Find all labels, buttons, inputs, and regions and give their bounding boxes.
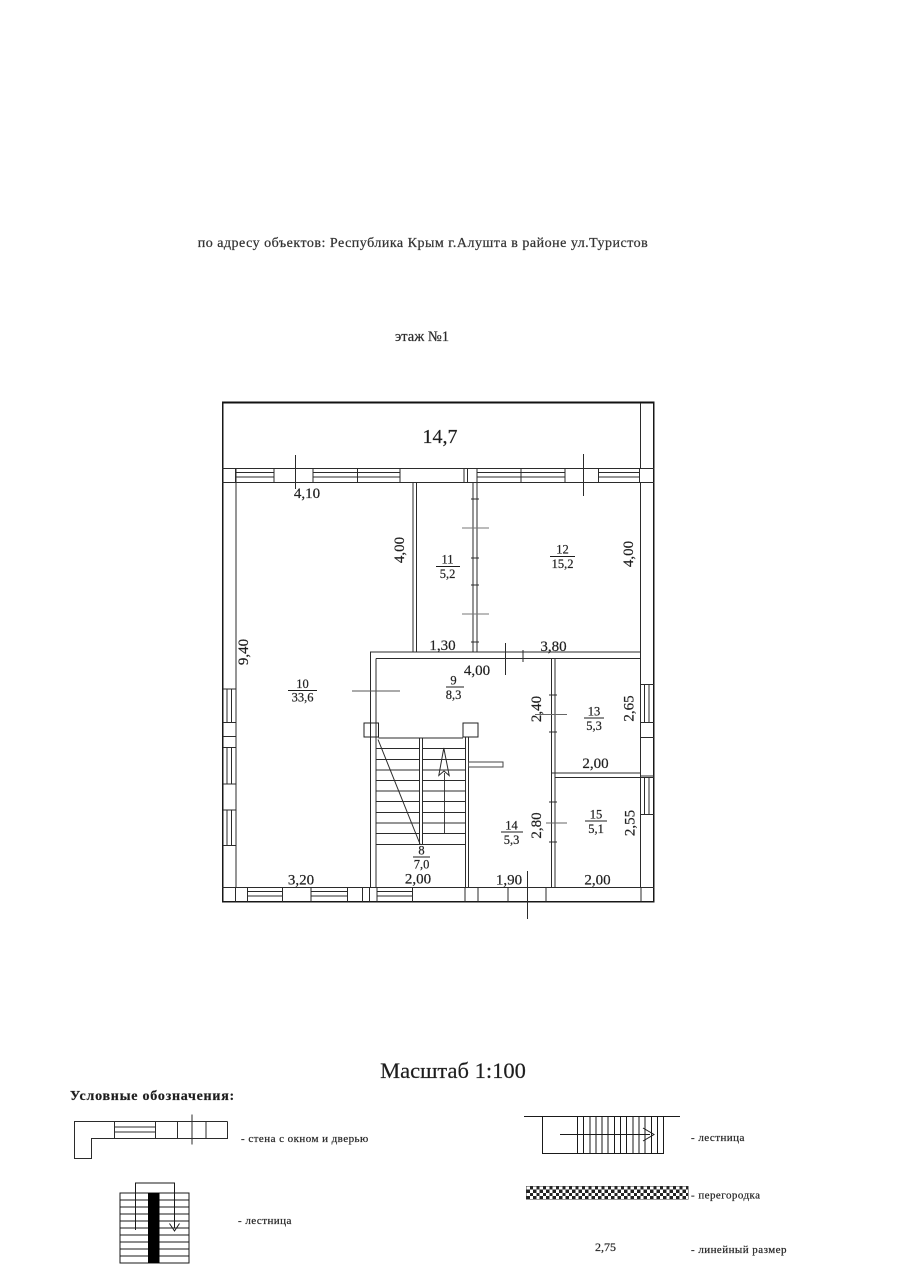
svg-text:2,00: 2,00 bbox=[405, 872, 431, 888]
svg-text:2,00: 2,00 bbox=[582, 756, 608, 772]
svg-text:11: 11 bbox=[441, 553, 453, 567]
svg-text:10: 10 bbox=[296, 677, 309, 691]
svg-text:2,55: 2,55 bbox=[623, 810, 639, 836]
svg-text:2,40: 2,40 bbox=[529, 696, 545, 722]
svg-text:33,6: 33,6 bbox=[292, 691, 314, 705]
svg-text:8,3: 8,3 bbox=[446, 688, 462, 702]
svg-text:4,00: 4,00 bbox=[621, 541, 637, 567]
svg-text:- линейный размер: - линейный размер bbox=[691, 1244, 787, 1256]
svg-text:5,1: 5,1 bbox=[588, 822, 604, 836]
svg-text:1,30: 1,30 bbox=[429, 638, 455, 654]
svg-text:9: 9 bbox=[450, 674, 456, 688]
svg-text:9,40: 9,40 bbox=[236, 639, 252, 665]
svg-text:- перегородка: - перегородка bbox=[691, 1190, 761, 1202]
svg-text:2,75: 2,75 bbox=[595, 1240, 616, 1254]
svg-text:5,3: 5,3 bbox=[586, 719, 602, 733]
svg-text:4,00: 4,00 bbox=[464, 663, 490, 679]
svg-text:Масштаб 1:100: Масштаб 1:100 bbox=[380, 1058, 526, 1083]
svg-text:- лестница: - лестница bbox=[691, 1132, 745, 1144]
svg-text:2,65: 2,65 bbox=[622, 695, 638, 721]
svg-text:8: 8 bbox=[418, 844, 424, 858]
svg-text:4,00: 4,00 bbox=[392, 537, 408, 563]
svg-text:5,2: 5,2 bbox=[440, 567, 456, 581]
svg-text:15: 15 bbox=[590, 808, 603, 822]
svg-text:5,3: 5,3 bbox=[504, 833, 520, 847]
svg-text:2,80: 2,80 bbox=[529, 812, 545, 838]
svg-text:3,80: 3,80 bbox=[540, 639, 566, 655]
svg-text:13: 13 bbox=[588, 705, 601, 719]
svg-text:Условные обозначения:: Условные обозначения: bbox=[70, 1089, 235, 1104]
svg-text:3,20: 3,20 bbox=[288, 873, 314, 889]
svg-text:по адресу объектов: Республика: по адресу объектов: Республика Крым г.Ал… bbox=[198, 236, 649, 251]
svg-text:15,2: 15,2 bbox=[552, 557, 574, 571]
svg-text:1,90: 1,90 bbox=[496, 873, 522, 889]
svg-text:4,10: 4,10 bbox=[294, 486, 320, 502]
svg-text:- лестница: - лестница bbox=[238, 1215, 292, 1227]
svg-text:2,00: 2,00 bbox=[584, 873, 610, 889]
svg-text:14: 14 bbox=[505, 819, 518, 833]
svg-text:- стена с окном и дверью: - стена с окном и дверью bbox=[241, 1133, 369, 1145]
svg-text:12: 12 bbox=[556, 543, 569, 557]
svg-text:14,7: 14,7 bbox=[423, 426, 458, 448]
svg-text:этаж №1: этаж №1 bbox=[395, 329, 449, 345]
svg-text:7,0: 7,0 bbox=[414, 858, 430, 872]
